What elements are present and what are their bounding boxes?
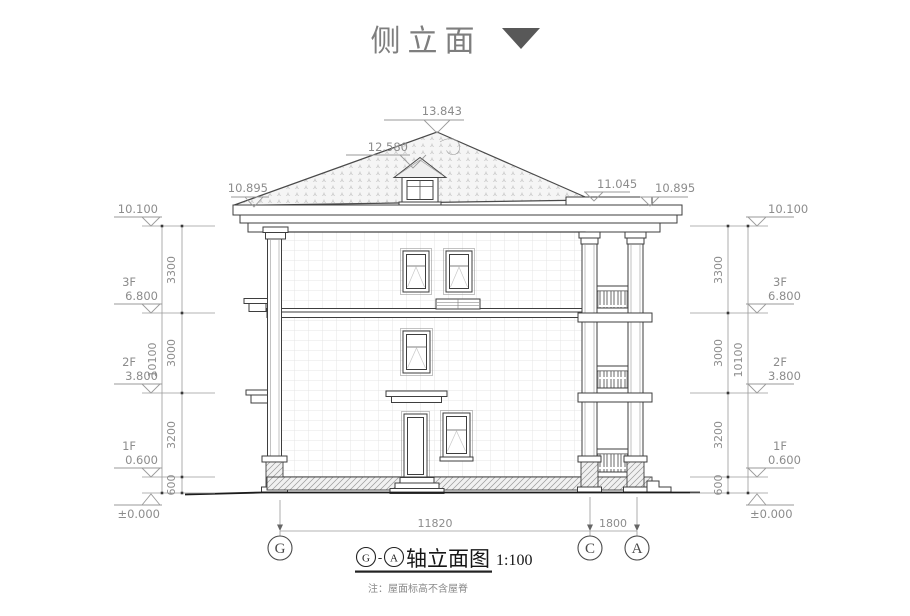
level-left-3f: 3F 6.800: [114, 275, 162, 313]
figure-scale: 1:100: [496, 552, 532, 569]
eave-cornice: [233, 205, 682, 232]
level-value: 6.800: [768, 289, 801, 303]
axis-bubble-a: A: [625, 536, 649, 560]
dim-segment: 3300: [712, 256, 725, 284]
balustrade-2f: [597, 366, 628, 393]
figure-axis-separator: -: [378, 550, 382, 565]
level-label: 1F: [773, 439, 787, 453]
figure-name: 轴立面图: [406, 548, 490, 571]
level-right-roofline: 10.100: [746, 202, 808, 226]
porch-roof-slab: [566, 197, 652, 206]
porch-column-right: [625, 232, 646, 456]
marker-ridge: 13.843: [384, 104, 464, 133]
axis-letter: A: [632, 541, 643, 557]
elevation-drawing: 13.843 12.580 10.895 11.045 10.895: [0, 0, 910, 616]
window-1f: [440, 411, 473, 462]
level-label: 3F: [773, 275, 787, 289]
porch-pedestal-left: [578, 456, 602, 492]
balustrade-3f: [597, 286, 628, 313]
dim-segment: 3000: [712, 339, 725, 367]
drawing-note: 注：屋面标高不含屋脊: [368, 582, 468, 595]
level-right-3f: 3F 6.800: [746, 275, 801, 313]
marker-right-eave-value: 10.895: [655, 181, 695, 195]
level-left-1f: 1F 0.600: [114, 439, 162, 477]
marker-dormer-value: 12.580: [368, 140, 408, 154]
porch: [578, 232, 652, 477]
level-value: ±0.000: [750, 507, 793, 521]
level-value: 6.800: [125, 289, 158, 303]
dim-segment: 3000: [165, 339, 178, 367]
window-3f-left: [401, 249, 432, 295]
level-value: 0.600: [125, 453, 158, 467]
marker-porch-top-value: 11.045: [597, 177, 637, 191]
level-value: 0.600: [768, 453, 801, 467]
level-right-2f: 2F 3.800: [746, 355, 801, 393]
porch-pedestal-right: [624, 456, 648, 492]
dim-segment: 3200: [712, 421, 725, 449]
figure-axis-end: A: [390, 553, 398, 565]
dim-total: 10100: [732, 343, 745, 378]
dim-segment: 600: [165, 475, 178, 496]
figure-axis-start: G: [362, 553, 370, 565]
level-label: 2F: [773, 355, 787, 369]
level-value: 3.800: [768, 369, 801, 383]
level-left-roofline: 10.100: [114, 202, 162, 226]
dim-total: 10100: [146, 343, 159, 378]
porch-band-3f: [578, 313, 652, 322]
door-canopy: [386, 391, 447, 403]
dim-main-span: 11820: [418, 517, 453, 530]
level-label: 1F: [122, 439, 136, 453]
ac-unit-box: [436, 299, 480, 309]
dim-segment: 3300: [165, 256, 178, 284]
level-right-1f: 1F 0.600: [746, 439, 801, 477]
level-left-ground: ±0.000: [114, 494, 162, 521]
marker-left-eave-value: 10.895: [228, 181, 268, 195]
dim-chain-left: 10.100 3F 6.800 2F 3.800 1F 0.600 ±0.000…: [114, 202, 215, 521]
marker-ridge-value: 13.843: [422, 104, 462, 118]
dim-chain-right: 10.100 3F 6.800 2F 3.800 1F 0.600 ±0.000…: [690, 202, 808, 521]
figure-title: G - A 轴立面图 1:100: [355, 548, 532, 573]
level-label: 3F: [122, 275, 136, 289]
level-value: 10.100: [118, 202, 158, 216]
axis-bubble-c: C: [578, 536, 602, 560]
dim-segment: 3200: [165, 421, 178, 449]
window-2f: [401, 329, 433, 376]
dim-porch-span: 1800: [599, 517, 627, 530]
entry-door: [402, 412, 430, 478]
dim-segment: 600: [712, 475, 725, 496]
floor-band-3f: [267, 309, 585, 318]
window-3f-right: [444, 249, 475, 295]
level-right-ground: ±0.000: [746, 494, 794, 521]
figure-title-underline: [355, 571, 492, 573]
level-value: ±0.000: [117, 507, 160, 521]
porch-column-left: [579, 232, 600, 456]
balustrade-1f: [597, 449, 628, 477]
axis-letter: C: [585, 541, 595, 557]
level-value: 10.100: [768, 202, 808, 216]
level-label: 2F: [122, 355, 136, 369]
porch-steps: [647, 481, 671, 492]
axis-letter: G: [275, 541, 286, 557]
porch-band-2f: [578, 393, 652, 402]
axis-bubble-g: G: [268, 536, 292, 560]
